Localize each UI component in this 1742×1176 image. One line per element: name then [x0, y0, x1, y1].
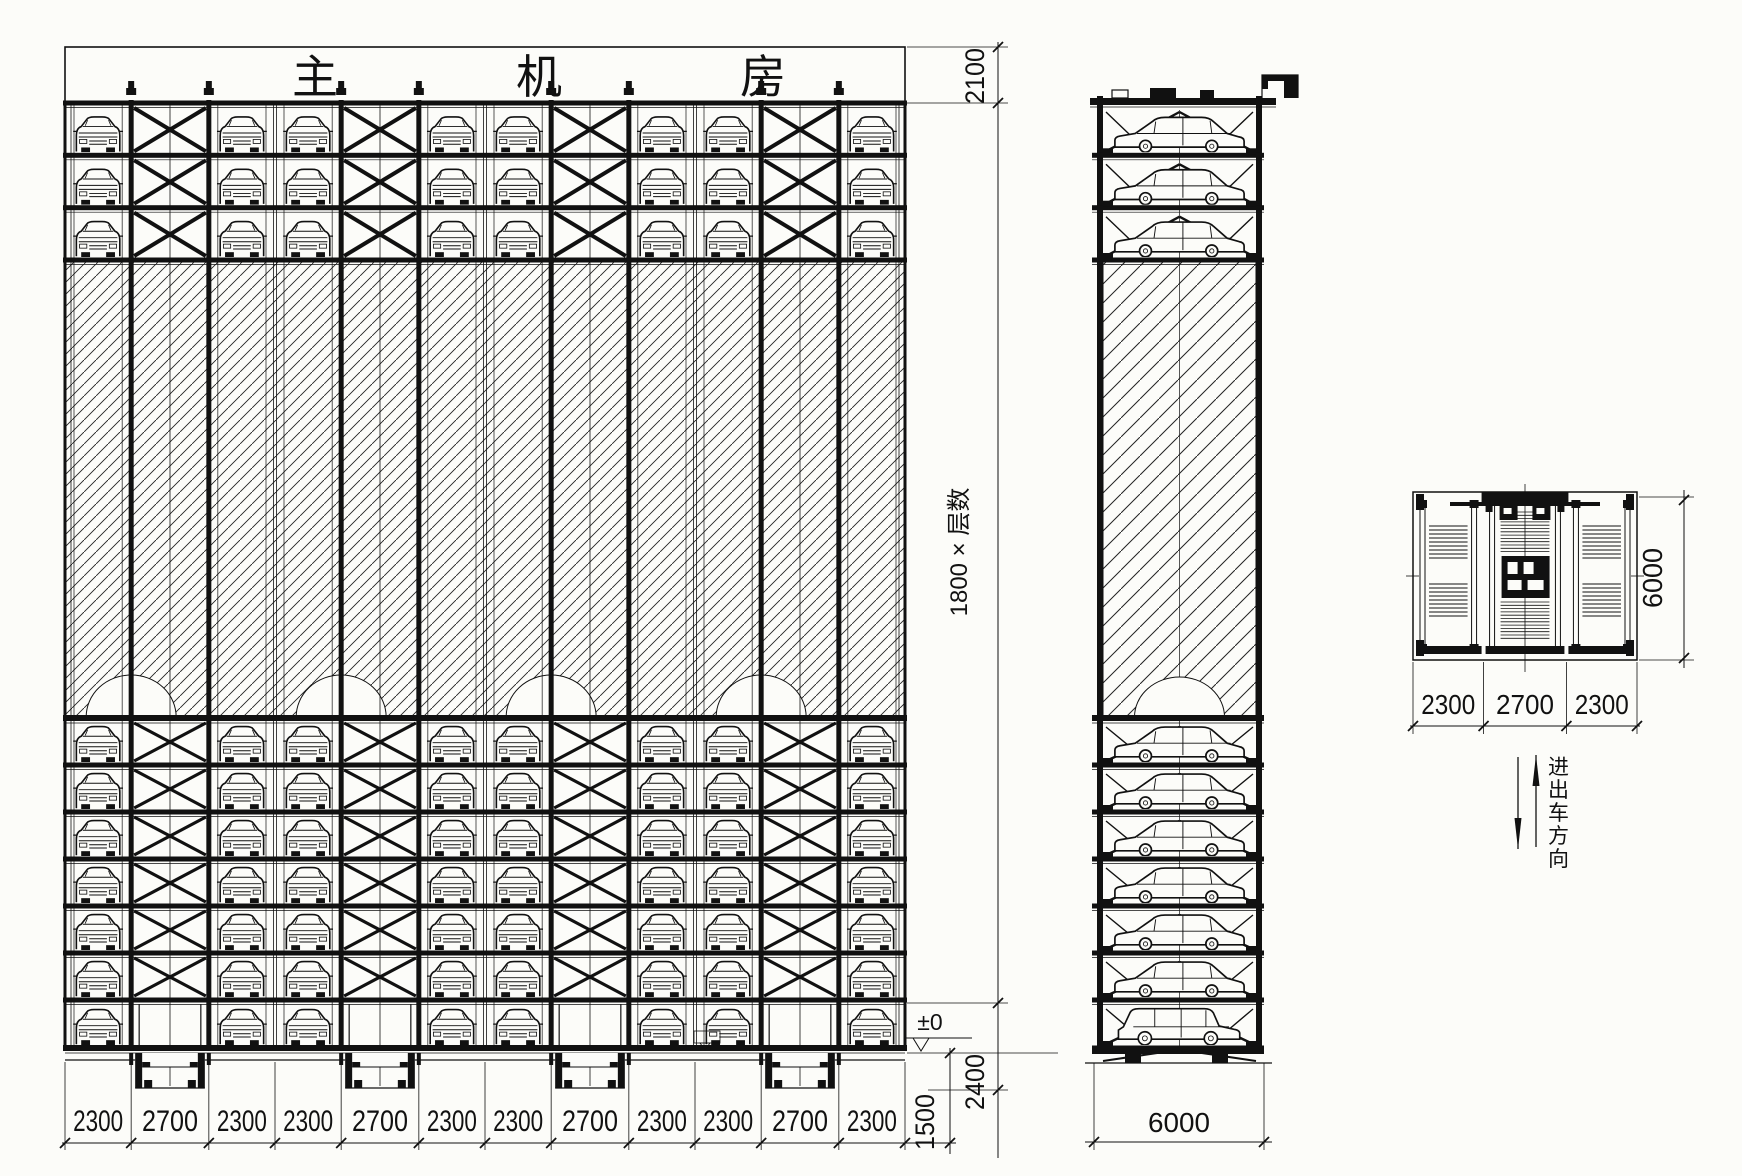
car-glyph: [847, 169, 897, 204]
car-glyph: [73, 774, 123, 809]
car-glyph: [493, 169, 543, 204]
ground-level-label: ±0: [917, 1009, 942, 1035]
car-glyph: [427, 169, 477, 204]
car-glyph: [73, 169, 123, 204]
dim-side-depth: 6000: [1148, 1107, 1210, 1138]
dim-base-height: 2400: [960, 1054, 990, 1110]
car-glyph: [703, 169, 753, 204]
hatch-zone: [65, 260, 905, 718]
car-glyph: [493, 821, 543, 856]
dimension-label: 2300: [217, 1105, 267, 1138]
car-glyph: [283, 774, 333, 809]
car-glyph: [73, 222, 123, 257]
car-glyph: [703, 821, 753, 856]
car-glyph: [217, 868, 267, 903]
arrow-down-icon: [1515, 818, 1522, 849]
car-glyph: [493, 962, 543, 997]
car-glyph: [847, 868, 897, 903]
dim-floor-height-formula: 1800 × 层数: [946, 488, 973, 617]
car-glyph: [73, 1010, 123, 1045]
car-glyph: [283, 117, 333, 152]
car-glyph: [217, 1010, 267, 1045]
dimension-label: 2700: [772, 1105, 828, 1138]
car-glyph: [703, 915, 753, 950]
dimension-label: 2300: [1421, 689, 1475, 720]
car-glyph: [73, 962, 123, 997]
car-glyph: [703, 222, 753, 257]
machine-room-label: 主机房: [292, 51, 964, 103]
car-glyph: [493, 727, 543, 762]
car-glyph: [283, 169, 333, 204]
car-glyph: [283, 1010, 333, 1045]
car-glyph: [637, 868, 687, 903]
front-elevation-view: 2300270023002300270023002300270023002300…: [60, 42, 1058, 1158]
car-glyph: [637, 774, 687, 809]
car-glyph: [73, 915, 123, 950]
side-elevation-view: [1085, 75, 1298, 1150]
car-glyph: [703, 962, 753, 997]
dimension-label: 2300: [847, 1105, 897, 1138]
car-glyph: [703, 1010, 753, 1045]
car-glyph: [493, 774, 543, 809]
dimension-label: 2300: [73, 1105, 123, 1138]
car-glyph: [427, 1010, 477, 1045]
car-glyph: [283, 821, 333, 856]
car-glyph: [427, 222, 477, 257]
car-glyph: [217, 727, 267, 762]
car-glyph: [637, 169, 687, 204]
car-glyph: [637, 117, 687, 152]
car-glyph: [1115, 868, 1244, 903]
car-glyph: [637, 962, 687, 997]
cad-drawing-sheet: 2300270023002300270023002300270023002300…: [0, 0, 1742, 1176]
dim-plan-depth: 6000: [1637, 548, 1668, 608]
car-glyph: [637, 727, 687, 762]
car-glyph: [1115, 170, 1244, 205]
level-marker-icon: [913, 1038, 929, 1051]
car-glyph: [703, 727, 753, 762]
dim-pit-depth: 1500: [910, 1094, 940, 1150]
dimension-label: 2300: [703, 1105, 753, 1138]
car-glyph: [217, 774, 267, 809]
car-glyph: [283, 962, 333, 997]
direction-label: 进出车方向: [1548, 756, 1569, 871]
car-glyph: [217, 222, 267, 257]
car-glyph: [847, 774, 897, 809]
car-glyph: [427, 774, 477, 809]
dimension-label: 2700: [352, 1105, 408, 1138]
car-glyph: [1115, 915, 1244, 950]
dimension-label: 2300: [637, 1105, 687, 1138]
car-glyph: [427, 915, 477, 950]
car-glyph: [217, 169, 267, 204]
car-glyph: [217, 117, 267, 152]
arrow-up-icon: [1533, 755, 1540, 786]
car-glyph: [283, 222, 333, 257]
car-glyph: [1118, 1009, 1239, 1045]
car-glyph: [637, 915, 687, 950]
car-glyph: [217, 915, 267, 950]
dimension-label: 2300: [1575, 689, 1629, 720]
car-glyph: [703, 868, 753, 903]
car-glyph: [73, 117, 123, 152]
car-glyph: [847, 117, 897, 152]
car-glyph: [637, 821, 687, 856]
car-glyph: [637, 1010, 687, 1045]
car-glyph: [283, 915, 333, 950]
car-glyph: [703, 117, 753, 152]
dimension-label: 2700: [1496, 689, 1554, 720]
car-glyph: [1115, 774, 1244, 809]
car-glyph: [217, 821, 267, 856]
dimension-label: 2700: [142, 1105, 198, 1138]
car-glyph: [493, 1010, 543, 1045]
dim-machine-room-height: 2100: [960, 48, 990, 104]
car-glyph: [1115, 962, 1244, 997]
car-glyph: [217, 962, 267, 997]
dimension-label: 2300: [427, 1105, 477, 1138]
car-glyph: [493, 117, 543, 152]
car-glyph: [847, 727, 897, 762]
car-glyph: [1115, 117, 1244, 152]
hatch-zone: [1103, 260, 1256, 718]
car-glyph: [73, 727, 123, 762]
car-glyph: [73, 868, 123, 903]
car-glyph: [637, 222, 687, 257]
car-glyph: [493, 222, 543, 257]
car-glyph: [1115, 821, 1244, 856]
car-glyph: [73, 821, 123, 856]
car-glyph: [847, 222, 897, 257]
car-glyph: [427, 727, 477, 762]
dimension-label: 2300: [493, 1105, 543, 1138]
car-glyph: [1115, 222, 1244, 257]
car-glyph: [427, 117, 477, 152]
car-glyph: [493, 915, 543, 950]
car-glyph: [703, 774, 753, 809]
car-glyph: [847, 962, 897, 997]
car-glyph: [847, 821, 897, 856]
car-glyph: [283, 868, 333, 903]
car-glyph: [493, 868, 543, 903]
plan-view: 230027002300进出车方向: [1406, 484, 1694, 871]
car-glyph: [283, 727, 333, 762]
car-glyph: [427, 868, 477, 903]
car-glyph: [427, 962, 477, 997]
parking-system-drawing: 2300270023002300270023002300270023002300…: [0, 0, 1742, 1176]
car-glyph: [1115, 727, 1244, 762]
dimension-label: 2700: [562, 1105, 618, 1138]
car-glyph: [427, 821, 477, 856]
car-glyph: [847, 1010, 897, 1045]
dimension-label: 2300: [283, 1105, 333, 1138]
car-glyph: [847, 915, 897, 950]
